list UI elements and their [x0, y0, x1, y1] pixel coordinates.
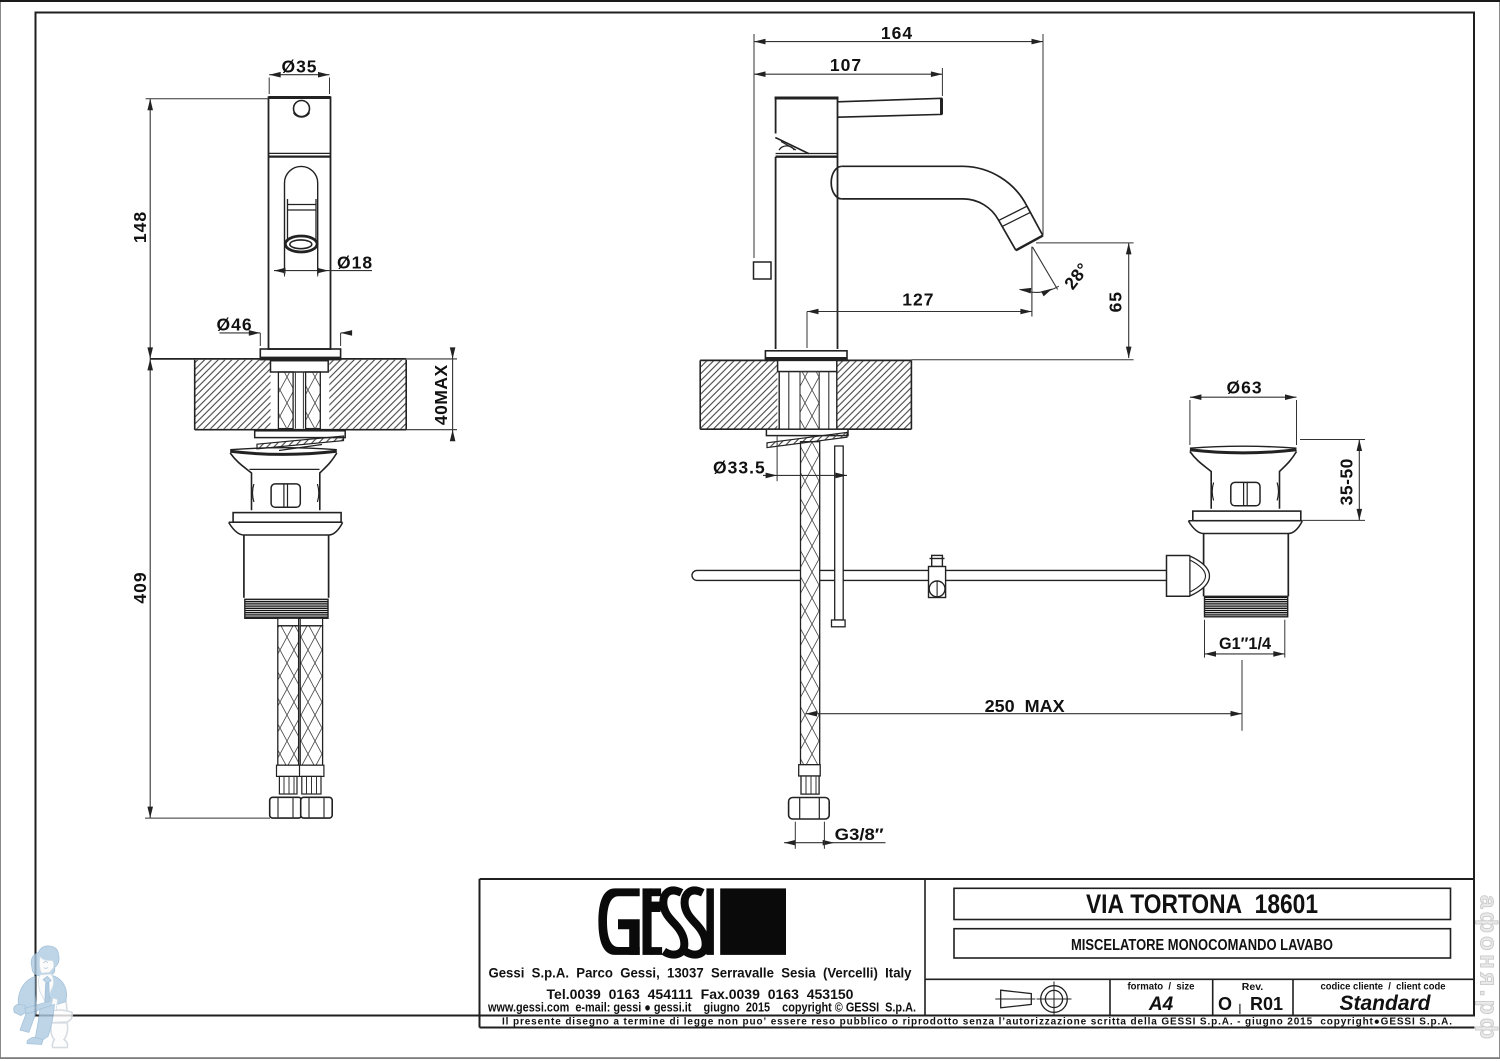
svg-text:250 MAX: 250 MAX — [985, 696, 1065, 716]
svg-text:107: 107 — [830, 55, 862, 75]
svg-text:Rev.: Rev. — [1242, 981, 1263, 993]
svg-text:40MAX: 40MAX — [431, 364, 451, 425]
svg-text:35-50: 35-50 — [1337, 458, 1357, 505]
svg-text:codice cliente / client code: codice cliente / client code — [1321, 981, 1446, 993]
svg-text:164: 164 — [881, 23, 913, 43]
svg-text:афоня.рф: афоня.рф — [1475, 895, 1500, 1043]
svg-text:148: 148 — [130, 211, 150, 243]
svg-text:Ø18: Ø18 — [337, 253, 373, 273]
svg-text:A4: A4 — [1148, 994, 1174, 1015]
svg-text:Ø33.5: Ø33.5 — [713, 458, 766, 478]
svg-text:G3/8″: G3/8″ — [835, 826, 884, 844]
svg-text:VIA TORTONA 18601: VIA TORTONA 18601 — [1086, 889, 1318, 919]
svg-text:65: 65 — [1106, 291, 1126, 312]
svg-text:Ø46: Ø46 — [217, 315, 253, 335]
svg-text:formato / size: formato / size — [1128, 981, 1195, 993]
svg-text:R01: R01 — [1250, 994, 1283, 1014]
svg-text:Gessi S.p.A. Parco Gessi,: Gessi S.p.A. Parco Gessi, 13037 Serraval… — [489, 965, 912, 981]
svg-text:Standard: Standard — [1339, 992, 1431, 1015]
svg-text:409: 409 — [130, 571, 150, 603]
svg-text:O: O — [1218, 994, 1232, 1014]
svg-text:Ø63: Ø63 — [1227, 378, 1263, 398]
svg-text:127: 127 — [902, 290, 934, 310]
svg-text:MISCELATORE MONOCOMANDO LAVABO: MISCELATORE MONOCOMANDO LAVABO — [1071, 937, 1333, 954]
svg-text:www.gessi.com e-mail: gessi ●: www.gessi.com e-mail: gessi ● gessi.it g… — [487, 1001, 916, 1015]
svg-text:Ø35: Ø35 — [281, 57, 317, 77]
svg-text:Il presente disegno a termine: Il presente disegno a termine di legge n… — [502, 1017, 1452, 1028]
svg-text:G1″1/4: G1″1/4 — [1219, 635, 1272, 653]
